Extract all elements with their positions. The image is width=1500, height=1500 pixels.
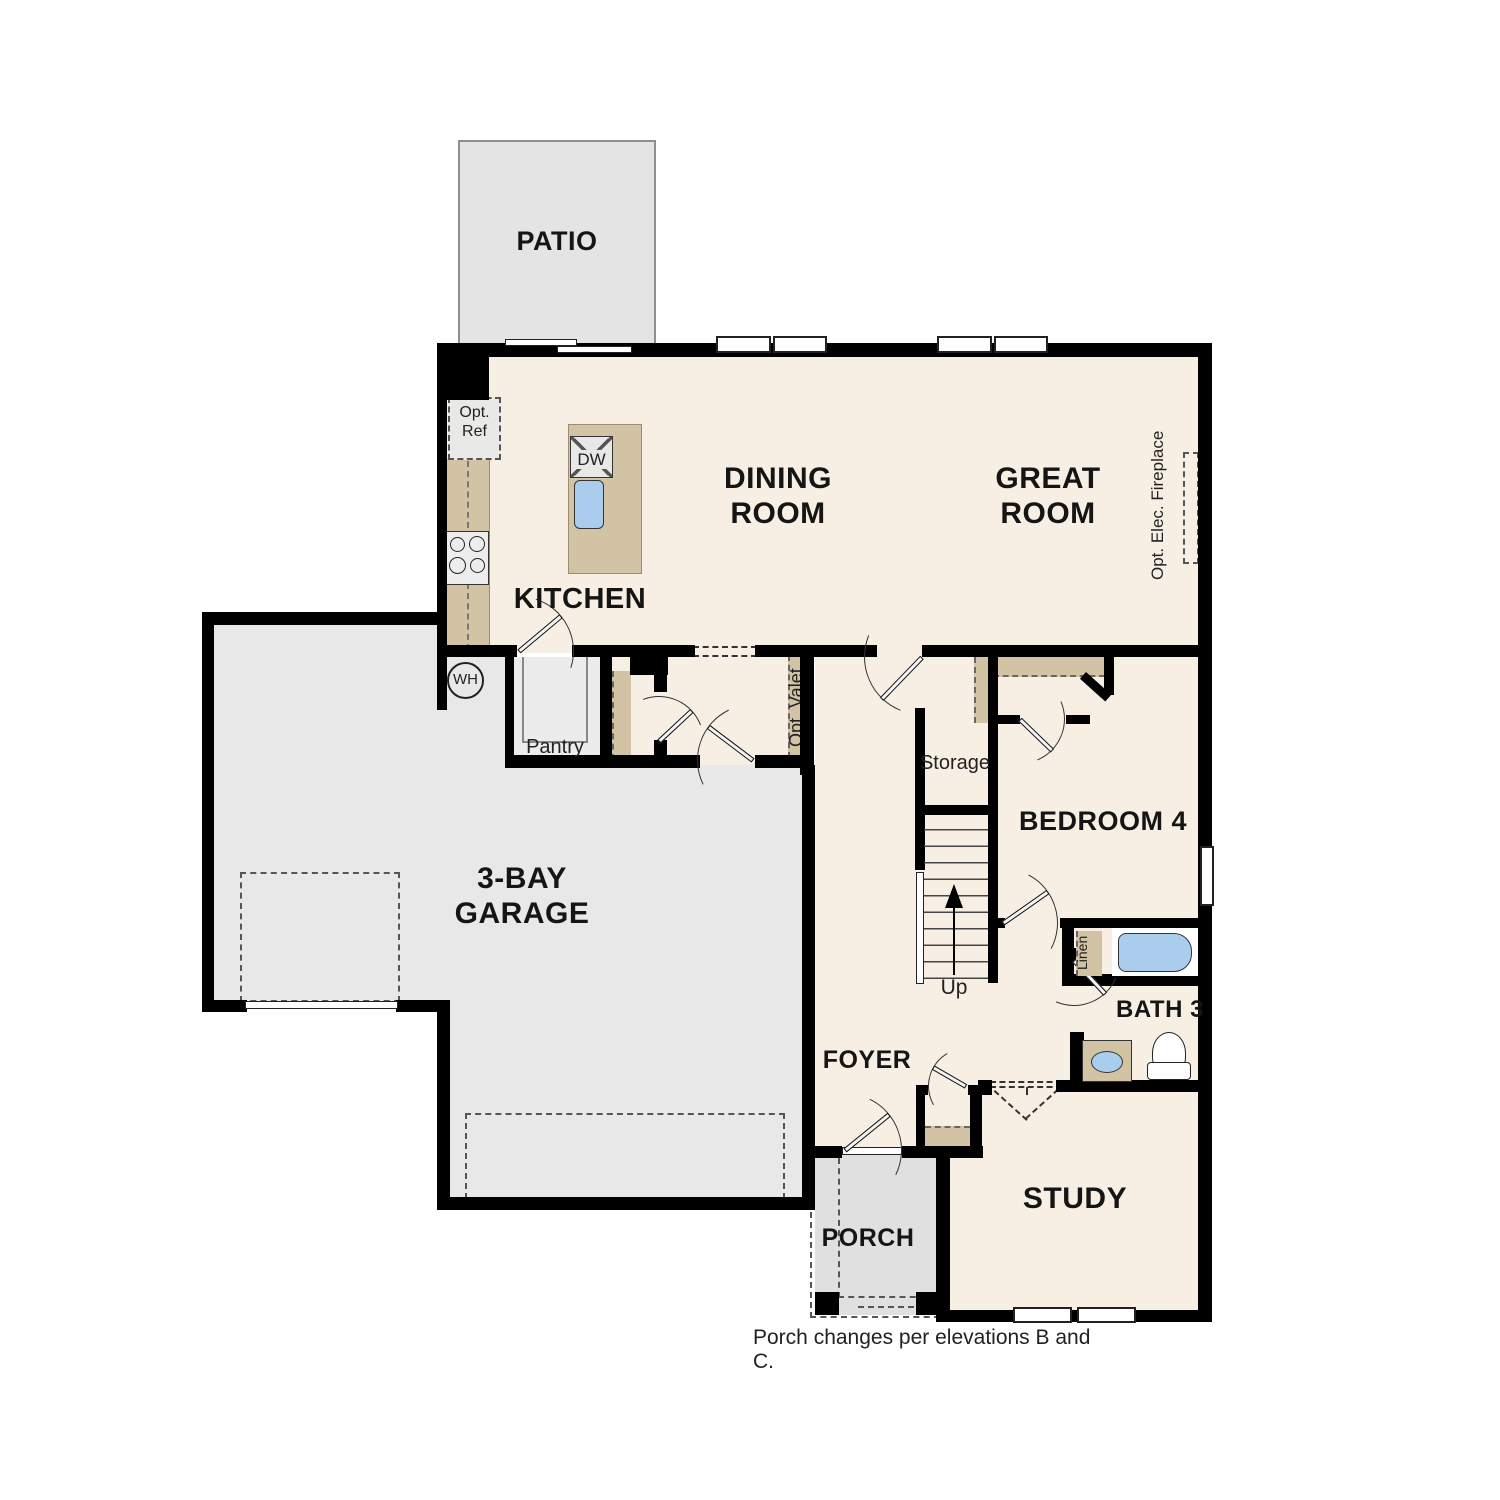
- water-heater-label: WH: [447, 671, 484, 688]
- wall: [936, 1310, 1212, 1322]
- wall: [916, 1085, 925, 1148]
- garage-bay-outline-left: [240, 872, 400, 1002]
- up-label: Up: [934, 976, 974, 1000]
- toilet-base: [1147, 1062, 1191, 1080]
- wall: [202, 612, 445, 625]
- burner-icon: [449, 557, 466, 574]
- island-sink: [574, 480, 604, 529]
- garage-door-threshold: [245, 1001, 398, 1009]
- foyer-closet-shelf: [925, 1126, 970, 1147]
- bathtub: [1118, 933, 1192, 972]
- wall: [202, 1000, 247, 1012]
- window: [716, 336, 771, 353]
- burner-icon: [450, 537, 465, 552]
- window: [1013, 1307, 1072, 1323]
- porch-label: PORCH: [815, 1224, 921, 1253]
- cased-opening-dining: [693, 646, 757, 657]
- dining-room-label: DININGROOM: [698, 462, 858, 531]
- wall: [1066, 715, 1090, 724]
- porch-roof-dashed-line: [858, 1306, 924, 1308]
- bath3-label: BATH 3: [1108, 996, 1212, 1024]
- burner-icon: [470, 558, 485, 573]
- foyer-label: FOYER: [815, 1046, 919, 1075]
- wall: [202, 612, 214, 1012]
- wall: [630, 651, 668, 675]
- opt-ref-label: Opt.Ref: [448, 403, 501, 441]
- sliding-door-panel: [505, 339, 577, 346]
- dishwasher-label: DW: [570, 450, 613, 470]
- fireplace-label: Opt. Elec. Fireplace: [1148, 420, 1174, 590]
- burner-icon: [469, 536, 485, 552]
- bath3-sink: [1091, 1051, 1123, 1073]
- stair-rail: [916, 872, 924, 984]
- wall: [437, 1197, 815, 1210]
- sliding-door-panel: [557, 346, 632, 353]
- pantry-label: Pantry: [505, 736, 605, 759]
- wall: [936, 1148, 950, 1322]
- porch-post: [815, 1292, 839, 1315]
- study-door-center-tick: [1026, 1087, 1028, 1095]
- bedroom4-label: BEDROOM 4: [1010, 806, 1196, 837]
- window: [773, 336, 827, 353]
- wall-corner-block: [437, 343, 489, 400]
- patio-label: PATIO: [458, 226, 656, 257]
- porch-note: Porch changes per elevations B and C.: [753, 1326, 1093, 1374]
- window: [937, 336, 992, 353]
- garage-label: 3-BAYGARAGE: [432, 862, 612, 931]
- great-room-label: GREATROOM: [968, 462, 1128, 531]
- window: [994, 336, 1048, 353]
- wall: [1198, 343, 1212, 1322]
- garage-bay-outline-main: [465, 1113, 785, 1199]
- linen-label: Linen: [1074, 929, 1102, 976]
- window: [1200, 846, 1214, 906]
- study-label: STUDY: [1000, 1182, 1150, 1217]
- floor-plan: Opt.Ref DW Opt. Valet Opt. Elec. Firepla…: [0, 0, 1500, 1500]
- wall: [654, 673, 667, 692]
- wall: [437, 1000, 450, 1210]
- window: [1077, 1307, 1136, 1323]
- porch-post: [916, 1292, 936, 1315]
- kitchen-label: KITCHEN: [500, 583, 660, 616]
- fireplace-outline: [1183, 452, 1199, 564]
- wall: [755, 645, 877, 657]
- storage-label: Storage: [913, 752, 997, 775]
